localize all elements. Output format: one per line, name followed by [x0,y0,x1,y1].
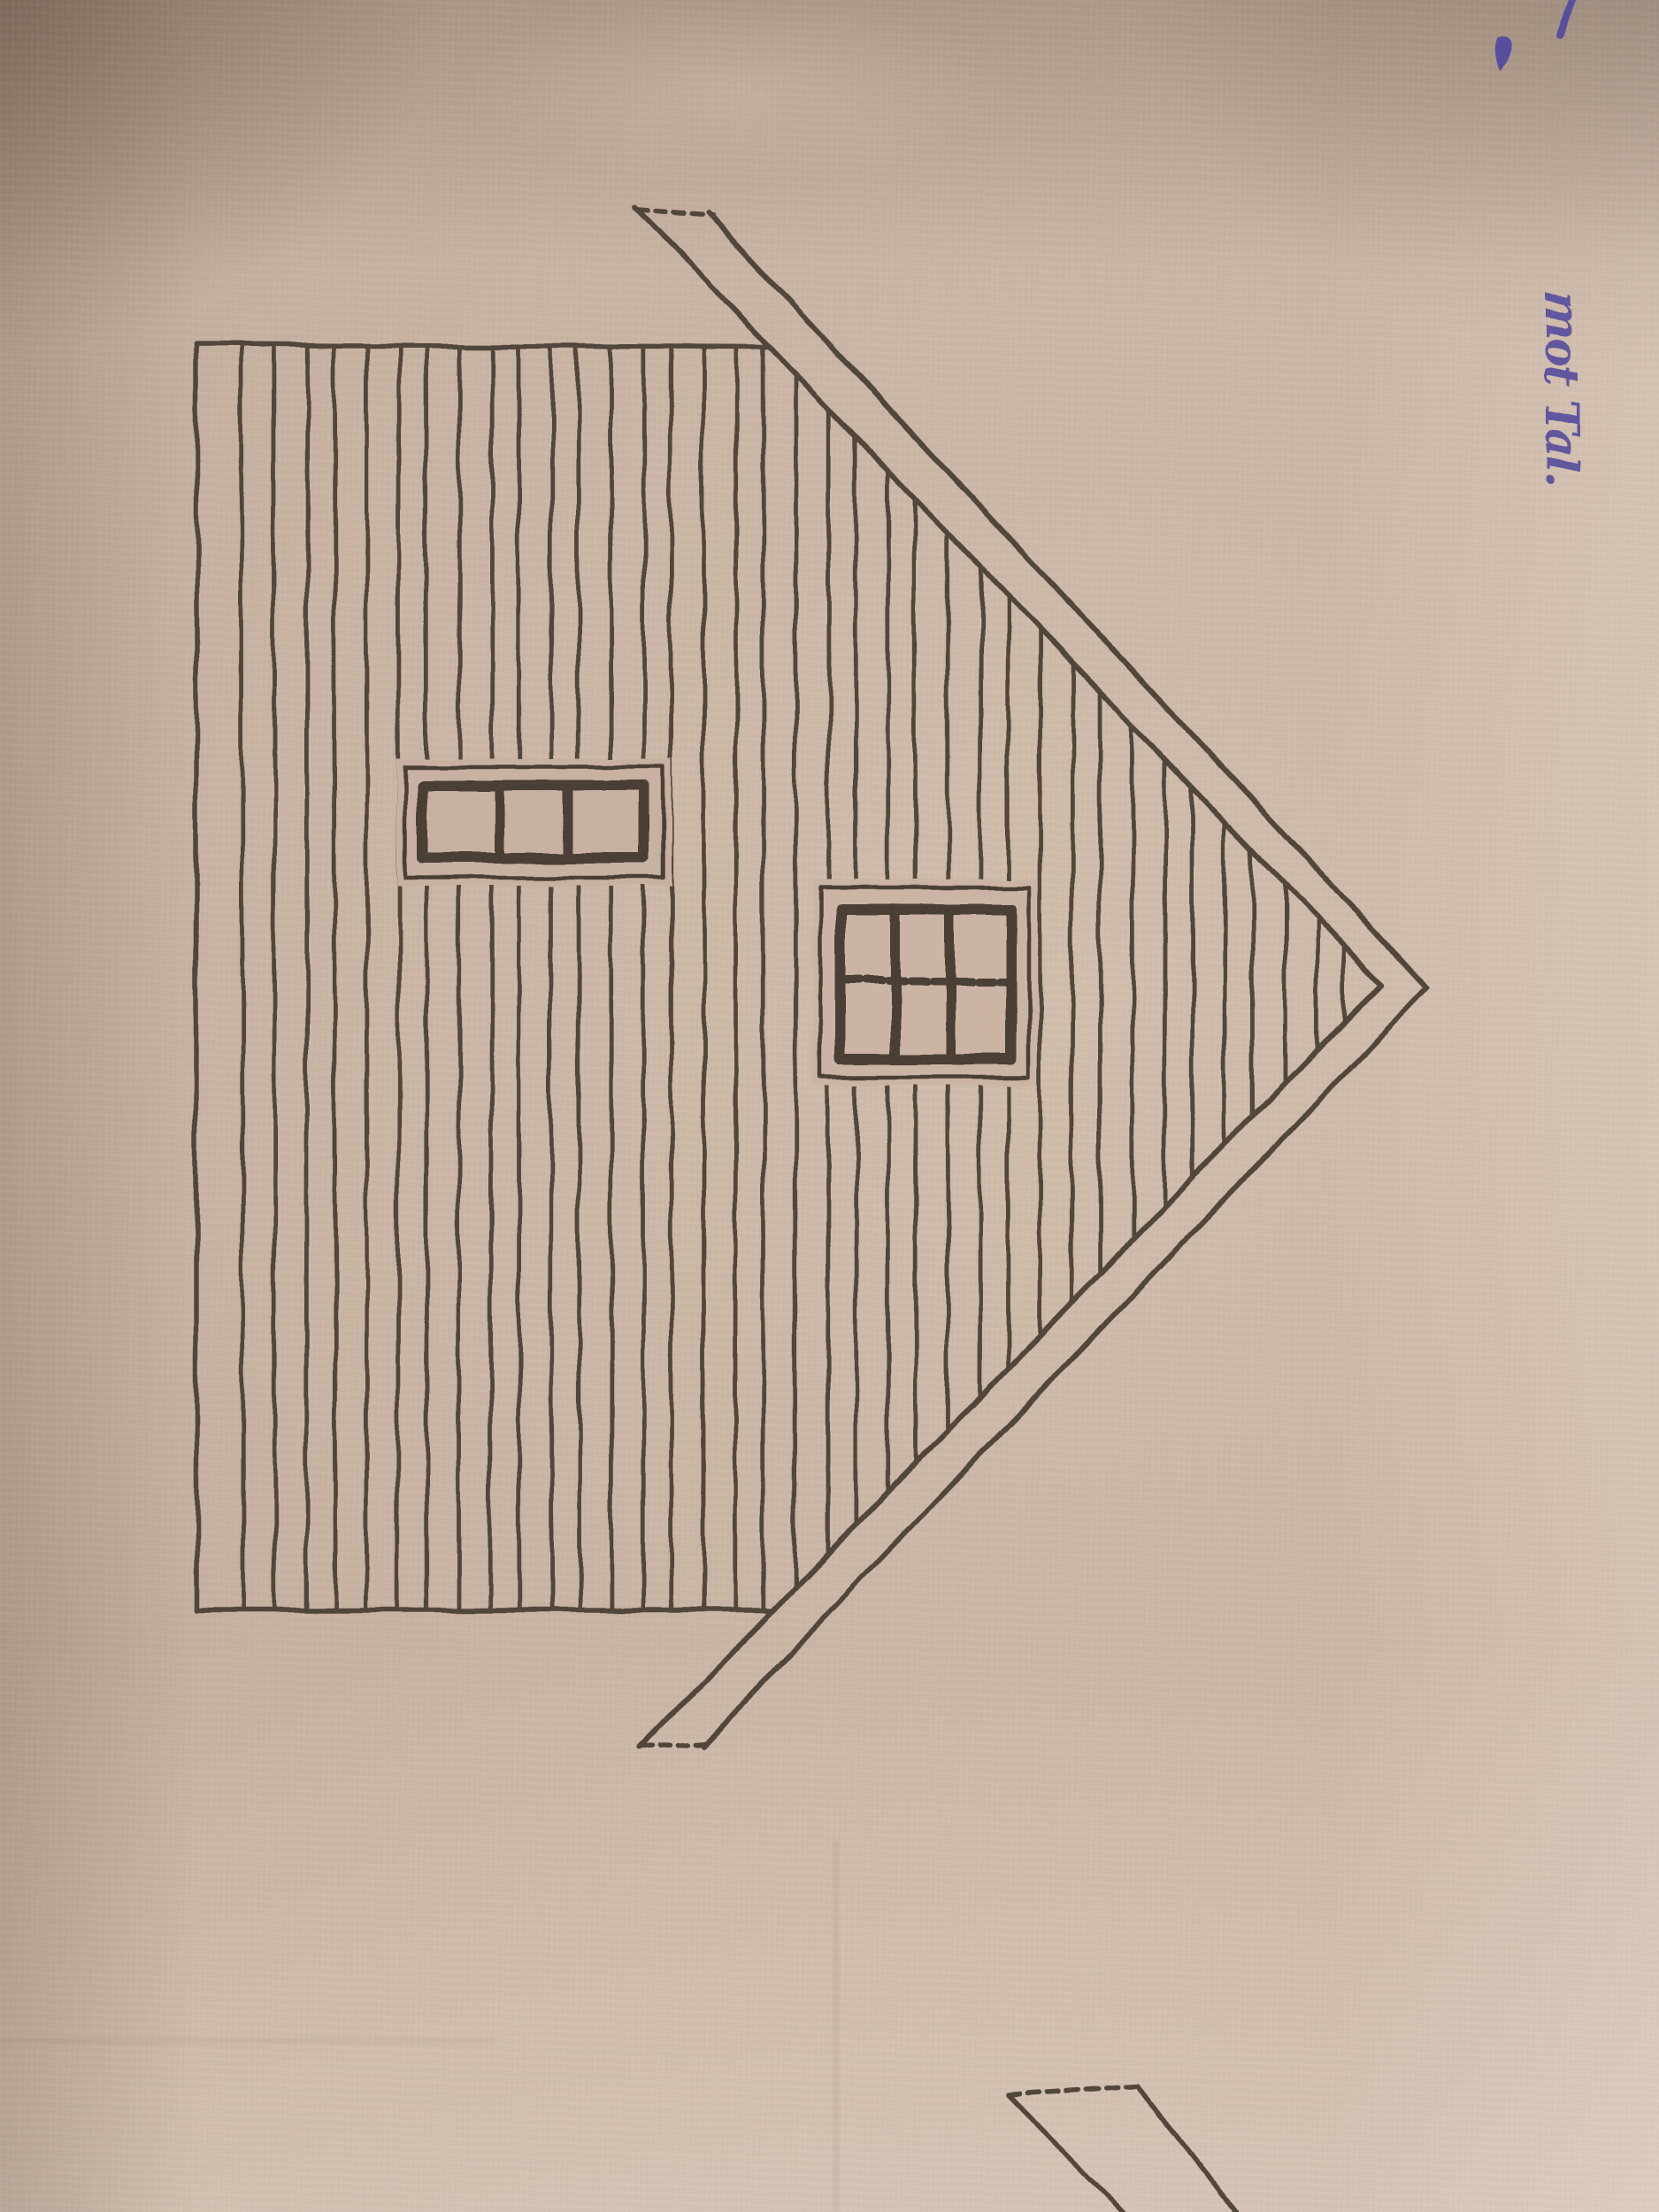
siding-stripe [398,329,400,1623]
siding-stripe [671,329,672,1623]
siding-stripe [426,329,427,1623]
siding-stripe [490,329,492,1623]
handwriting-text: mot Tal. [1534,290,1588,486]
window-triple-pane [397,759,672,886]
siding-stripe [518,329,519,1623]
siding-stripe [551,329,552,1623]
siding-stripe [735,329,737,1623]
sketch-svg: mot Tal. [0,0,1659,2212]
window-six-pane [812,879,1037,1085]
siding-stripe [306,329,307,1623]
siding-stripe [334,329,335,1623]
siding-stripe [763,329,764,1623]
siding-stripe [242,329,243,1623]
siding-stripe [643,329,644,1623]
siding-stripe [578,329,580,1623]
photo-of-sketch: mot Tal. [0,0,1659,2212]
window-paper-mask [397,759,672,886]
